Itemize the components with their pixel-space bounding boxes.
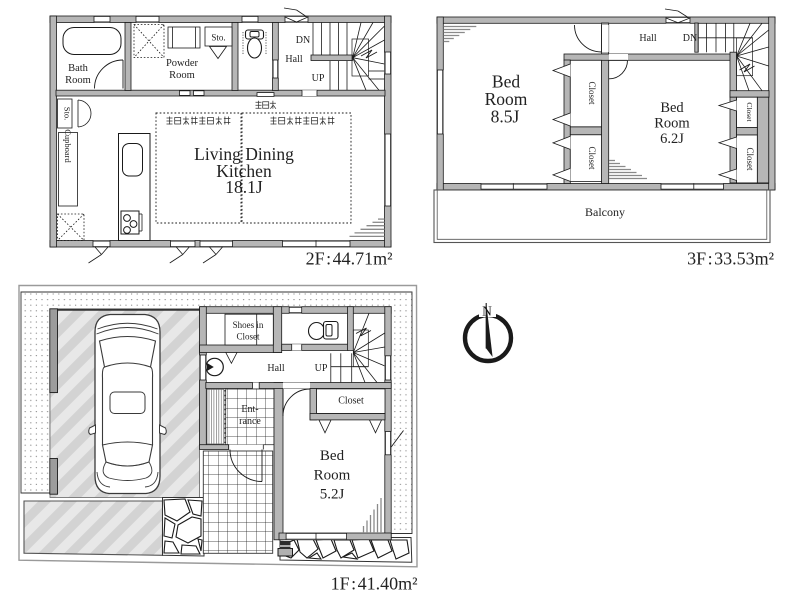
svg-text:Bed: Bed [660,100,684,116]
svg-text:Closet: Closet [587,81,597,105]
svg-text:N: N [482,304,492,319]
svg-text:Room: Room [654,116,690,132]
svg-text:Hall: Hall [267,363,284,374]
svg-text:Sto.: Sto. [211,33,225,43]
svg-text:Closet: Closet [587,146,597,170]
svg-text:Hall: Hall [285,54,302,65]
svg-text:8.5J: 8.5J [491,107,520,127]
svg-text:Room: Room [65,75,91,86]
svg-text:Sto.: Sto. [63,107,73,120]
svg-text:2F : 44.71m²: 2F : 44.71m² [306,249,393,269]
svg-text:1F : 41.40m²: 1F : 41.40m² [331,574,418,594]
svg-text:Room: Room [314,468,351,484]
svg-text:Bed: Bed [320,448,345,464]
svg-text:18.1J: 18.1J [225,177,263,197]
svg-text:UP: UP [312,73,325,84]
svg-text:Room: Room [169,70,195,81]
svg-text:DN: DN [683,33,697,44]
svg-text:6.2J: 6.2J [660,131,684,147]
svg-text:Closet: Closet [745,102,754,122]
svg-text:Hall: Hall [639,33,656,44]
svg-text:Powder: Powder [166,58,199,69]
svg-text:DN: DN [296,35,310,46]
svg-text:Balcony: Balcony [585,205,625,219]
svg-text:Ent-: Ent- [241,404,258,415]
svg-text:rance: rance [239,416,261,427]
svg-text:5.2J: 5.2J [320,487,345,503]
svg-text:Closet: Closet [338,396,364,407]
svg-text:Shoes in: Shoes in [233,320,264,330]
svg-text:Cupboard: Cupboard [63,129,73,163]
svg-text:3F : 33.53m²: 3F : 33.53m² [687,249,774,269]
svg-text:Closet: Closet [745,147,755,171]
svg-text:UP: UP [315,363,328,374]
svg-text:Closet: Closet [236,332,260,342]
svg-text:Bath: Bath [68,63,89,74]
